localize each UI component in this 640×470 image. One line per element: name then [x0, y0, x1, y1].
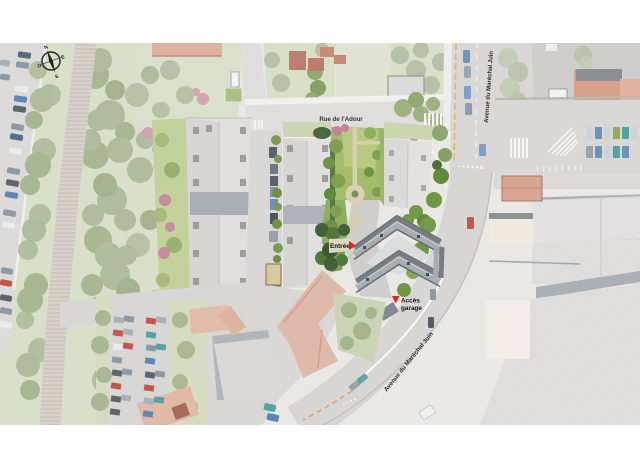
svg-text:garage: garage [401, 305, 422, 312]
svg-text:Entrée: Entrée [330, 243, 350, 250]
svg-text:Rue de l’Adour: Rue de l’Adour [319, 116, 363, 123]
svg-text:Accès: Accès [401, 298, 420, 305]
